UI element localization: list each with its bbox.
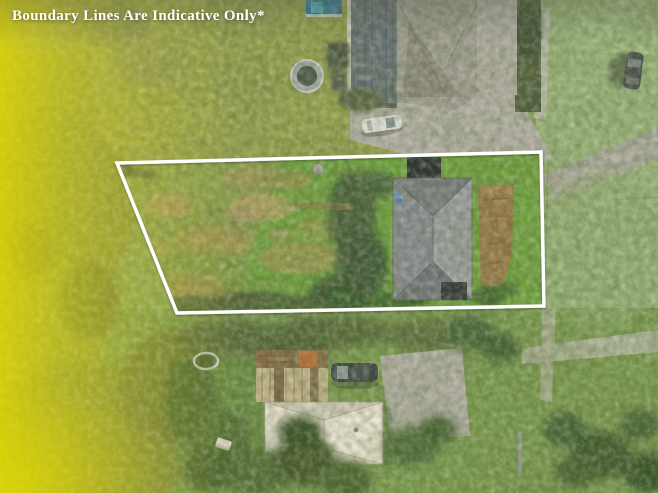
aerial-photo: Boundary Lines Are Indicative Only* xyxy=(0,0,658,493)
yellow-tint-corner xyxy=(0,250,390,493)
scene-svg xyxy=(0,0,658,493)
boundary-disclaimer-text: Boundary Lines Are Indicative Only* xyxy=(12,8,265,25)
